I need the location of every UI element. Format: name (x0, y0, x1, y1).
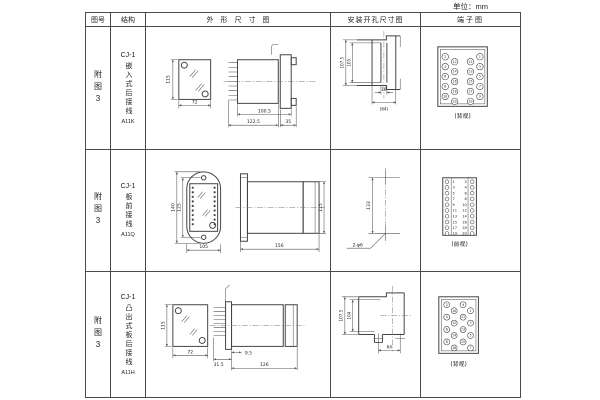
terminal-number: 2 (444, 55, 446, 59)
hole-cross (378, 171, 400, 240)
fig-no-row3: 附图3 (93, 316, 104, 353)
terminal-circle (445, 220, 449, 224)
dim-outer: 107.5 (339, 309, 344, 321)
dim-outer: 107.5 (339, 56, 344, 68)
dim-inner: 104 (347, 311, 352, 319)
terminal-circle (470, 203, 474, 207)
clamp-hook (226, 285, 230, 302)
mount-hole (202, 91, 208, 97)
unit-note: 单位：mm (453, 1, 488, 12)
hole-layout: 133 2-φ6 (347, 168, 400, 249)
side-view: 100.5 122.5 35 (224, 44, 317, 127)
terminal-cell-row2: 135791113151719 2468101214161820 (前视) (421, 150, 521, 272)
terminal-column: 1113151719 (467, 58, 474, 104)
terminal-column: 1214161820 (451, 58, 458, 104)
terminal-number: 9 (462, 303, 464, 307)
header-structure: 结构 (111, 13, 146, 27)
terminal-number: 2 (446, 303, 448, 307)
terminal-number: 12 (452, 321, 456, 325)
terminal-cell-row3: 2468 10121416 9111315 1357 (背视) (421, 272, 521, 398)
dim-front-width: 72 (192, 99, 198, 105)
terminal-circle (470, 209, 474, 213)
terminal-circle (445, 197, 449, 201)
dim-inner: 105 (346, 58, 351, 66)
terminal-number: 17 (468, 90, 472, 94)
structure-code-row3: A11H (121, 370, 134, 376)
front-view: 140 125 105 (170, 172, 220, 253)
terminal-number: 8 (444, 85, 446, 89)
install-drawing-a11k: 107.5 105 16 (64) (331, 27, 420, 149)
terminal-cell-row1: 246810 1214161820 1113151719 13579 (背视) (421, 27, 521, 150)
terminal-number: 16 (452, 346, 456, 350)
dim-side-len1: 100.5 (258, 108, 271, 114)
front-view: 115 72 (160, 305, 207, 359)
terminal-number: 3 (479, 65, 481, 69)
structure-desc-row2: 板前接线 (123, 193, 133, 229)
terminal-column: 10121416 (451, 308, 457, 351)
structure-code-row2: A11Q (121, 232, 135, 238)
structure-desc-row3: 凸出式板后接线 (123, 304, 133, 367)
terminal-number: 3 (469, 321, 471, 325)
outline-cell-row3: 115 72 9.5 31.5 (146, 272, 331, 398)
model-row3: CJ-1 (121, 294, 136, 301)
fig-no-row2: 附图3 (93, 192, 104, 229)
terminal-number: 9 (452, 203, 454, 207)
terminal-number: 4 (446, 315, 448, 319)
mount-hole (181, 62, 187, 68)
terminal-number: 15 (468, 80, 472, 84)
dim-front-inner: 125 (177, 203, 183, 212)
terminal-number: 19 (468, 99, 472, 103)
fig-no-cell-row1: 附图3 (86, 27, 111, 150)
model-row2: CJ-1 (121, 183, 136, 190)
header-terminal: 端子图 (421, 13, 521, 27)
terminal-number: 18 (453, 90, 457, 94)
terminal-number: 5 (479, 75, 481, 79)
header-fig-no: 图号 (86, 13, 111, 27)
dim-front-height: 115 (160, 321, 166, 330)
mount-screw (201, 235, 205, 239)
mount-hole (175, 308, 181, 314)
dim-w2: (64) (380, 106, 389, 111)
terminal-number: 1 (469, 309, 471, 313)
terminal-circle (470, 214, 474, 218)
terminal-circle (445, 203, 449, 207)
terminal-circle (445, 180, 449, 184)
side-view: 9.5 31.5 126 (210, 285, 305, 370)
terminal-number: 14 (452, 334, 456, 338)
terminal-number: 11 (461, 315, 465, 319)
terminal-number: 15 (461, 340, 465, 344)
dim-front-height: 115 (165, 75, 171, 84)
install-drawing-a11q: 133 2-φ6 (331, 150, 420, 271)
dim-w: 64 (387, 344, 393, 349)
terminal-circle (470, 197, 474, 201)
terminal-number: 13 (452, 214, 457, 218)
fig-no-cell-row2: 附图3 (86, 150, 111, 272)
terminal-number: 4 (444, 65, 446, 69)
terminal-number: 12 (453, 60, 457, 64)
side-view: 115 156 (236, 174, 327, 252)
terminal-number: 6 (444, 75, 446, 79)
mount-screw (201, 176, 205, 180)
terminal-number: 7 (479, 85, 481, 89)
install-cell-row3: 107.5 104 64 (331, 272, 421, 398)
terminal-circle (470, 180, 474, 184)
view-caption: (前视) (451, 240, 468, 248)
model-row1: CJ-1 (121, 52, 136, 59)
terminal-diagram-a11k: 246810 1214161820 1113151719 13579 (背视) (421, 27, 520, 149)
terminal-number: 12 (462, 209, 467, 213)
outline-drawing-a11k: 115 72 100.5 (146, 27, 330, 149)
terminal-circle (470, 232, 474, 236)
header-install: 安装开孔尺寸图 (331, 13, 421, 27)
terminal-number: 13 (461, 328, 465, 332)
terminal-circle (470, 220, 474, 224)
terminal-number: 18 (462, 226, 467, 230)
terminal-circle (445, 209, 449, 213)
terminal-column: 1357 (468, 308, 474, 351)
terminal-circle (445, 232, 449, 236)
hole-size-label: 2-φ6 (352, 243, 363, 249)
terminal-number: 5 (469, 334, 471, 338)
install-cell-row2: 133 2-φ6 (331, 150, 421, 272)
terminal-diagram-a11h: 2468 10121416 9111315 1357 (背视) (421, 272, 520, 397)
terminal-column: 13579 (477, 53, 484, 99)
terminal-number: 8 (446, 340, 448, 344)
mount-hole (199, 337, 205, 343)
dim-step: 9.5 (245, 350, 252, 356)
terminal-number: 1 (479, 55, 481, 59)
dim-hole-spacing: 133 (366, 201, 372, 210)
outline-cell-row2: 140 125 105 115 (146, 150, 331, 272)
cutout-section: 107.5 104 64 (339, 286, 412, 353)
terminal-number: 11 (468, 60, 472, 64)
terminal-diagram-a11q: 135791113151719 2468101214161820 (前视) (421, 150, 520, 271)
dim-side-len3: 35 (285, 119, 291, 125)
terminal-number: 19 (452, 232, 457, 236)
structure-desc-row1: 嵌入式后接线 (123, 62, 133, 116)
terminal-number: 6 (464, 191, 467, 195)
header-outline: 外形尺寸图 (146, 13, 331, 27)
outline-drawing-a11q: 140 125 105 115 (146, 150, 330, 271)
outline-cell-row1: 115 72 100.5 (146, 27, 331, 150)
terminal-number: 15 (452, 220, 457, 224)
dim-side-height: 115 (318, 203, 324, 212)
terminal-number: 10 (443, 95, 447, 99)
fig-no-cell-row3: 附图3 (86, 272, 111, 398)
terminal-number: 10 (462, 203, 467, 207)
view-caption: (背视) (450, 360, 466, 368)
outline-drawing-a11h: 115 72 9.5 31.5 (146, 272, 330, 397)
terminal-circle (470, 186, 474, 190)
terminal-number: 20 (462, 232, 467, 236)
terminal-number: 4 (464, 186, 467, 190)
terminal-circle (445, 214, 449, 218)
terminal-number: 3 (452, 186, 454, 190)
dim-front-outer: 140 (170, 203, 176, 212)
cutout-section: 107.5 105 16 (64) (339, 31, 400, 111)
terminal-circle (445, 186, 449, 190)
terminal-number: 13 (468, 70, 472, 74)
dim-side-len2: 122.5 (247, 119, 260, 125)
dim-front-width: 105 (199, 244, 208, 250)
dim-pins: 31.5 (214, 362, 224, 368)
terminal-column: 9111315 (460, 302, 466, 345)
terminal-column: 246810 (442, 53, 449, 99)
front-view: 115 72 (165, 60, 210, 109)
structure-code-row1: A11K (121, 119, 134, 125)
clamp-hook (271, 44, 278, 54)
install-cell-row1: 107.5 105 16 (64) (331, 27, 421, 150)
structure-cell-row3: CJ-1 凸出式板后接线 A11H (111, 272, 146, 398)
terminal-circle (445, 191, 449, 195)
terminal-number: 6 (446, 328, 448, 332)
terminal-pins (214, 308, 226, 336)
dim-front-width: 72 (187, 349, 193, 355)
terminal-circle (470, 226, 474, 230)
terminal-number: 16 (462, 220, 467, 224)
terminal-number: 16 (453, 80, 457, 84)
terminal-number: 5 (452, 191, 454, 195)
terminal-column: 2468 (444, 302, 450, 345)
terminal-circle (445, 226, 449, 230)
structure-cell-row2: CJ-1 板前接线 A11Q (111, 150, 146, 272)
terminal-number: 11 (452, 209, 457, 213)
terminal-number: 17 (452, 226, 457, 230)
terminal-circle (470, 191, 474, 195)
terminal-number: 1 (452, 180, 454, 184)
dim-w1: 16 (381, 87, 387, 92)
terminal-number: 8 (464, 197, 467, 201)
terminal-number: 14 (462, 214, 467, 218)
terminal-number: 14 (453, 70, 457, 74)
view-caption: (背视) (454, 112, 471, 120)
terminal-number: 7 (452, 197, 454, 201)
dimension-table: 图号 结构 外形尺寸图 安装开孔尺寸图 端子图 附图3 CJ-1 嵌入式后接线 … (85, 12, 521, 398)
fig-no-row1: 附图3 (93, 70, 104, 107)
drawing-sheet: 单位：mm 图号 结构 外形尺寸图 安装开孔尺寸图 端子图 附图3 CJ-1 嵌… (0, 0, 600, 400)
dim-total: 126 (260, 362, 269, 368)
terminal-number: 7 (469, 346, 471, 350)
dim-side-len: 156 (275, 243, 284, 249)
terminal-number: 10 (452, 309, 456, 313)
structure-cell-row1: CJ-1 嵌入式后接线 A11K (111, 27, 146, 150)
terminal-number: 9 (479, 95, 481, 99)
terminal-number: 20 (453, 99, 457, 103)
terminal-number: 2 (464, 180, 466, 184)
install-drawing-a11h: 107.5 104 64 (331, 272, 420, 397)
